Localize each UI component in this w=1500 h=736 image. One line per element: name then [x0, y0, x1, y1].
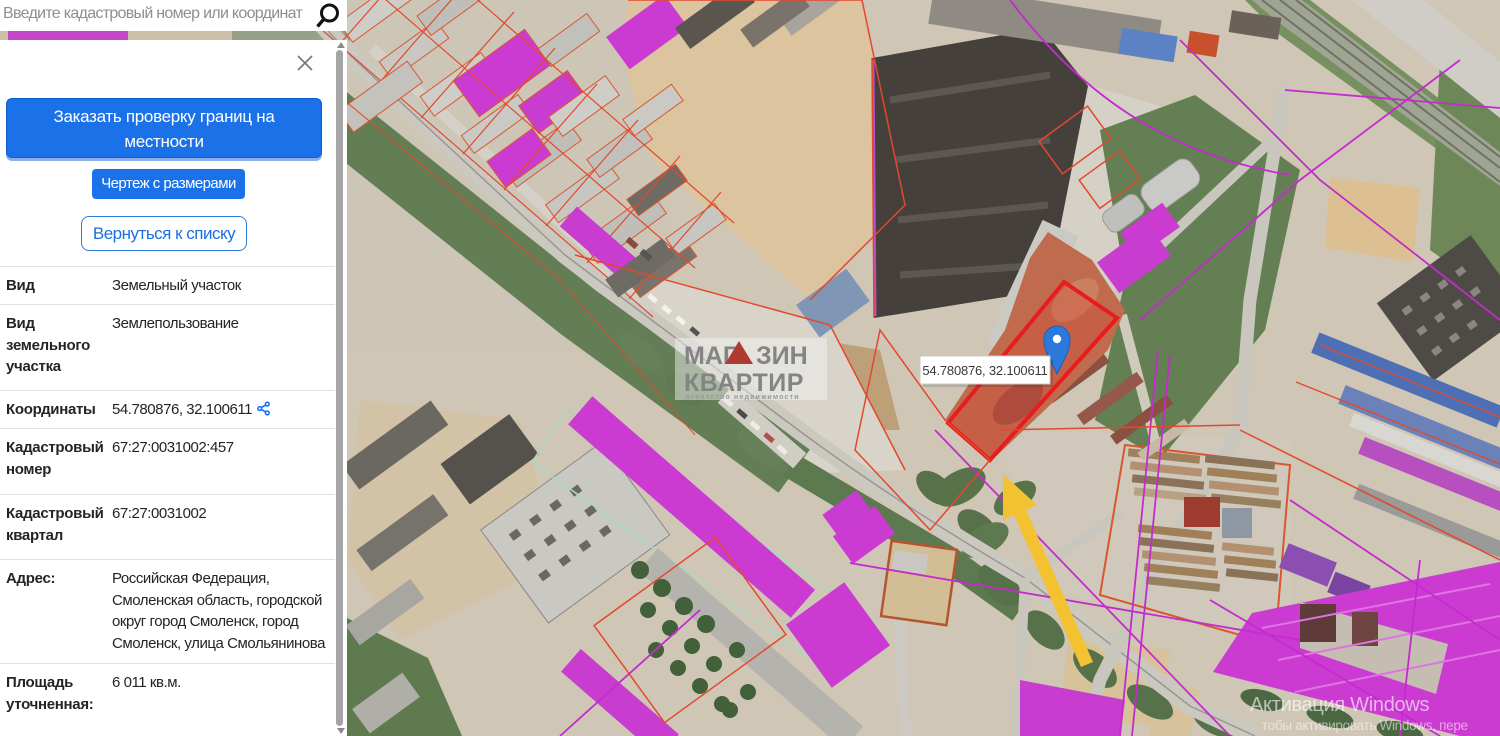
svg-text:Активация Windows: Активация Windows [1250, 694, 1430, 716]
svg-text:МАГ: МАГ [684, 342, 737, 370]
svg-text:ЗИН: ЗИН [756, 342, 808, 370]
svg-text:54.780876, 32.100611: 54.780876, 32.100611 [922, 363, 1047, 378]
svg-text:тобы активировать Windows, пер: тобы активировать Windows, пере [1262, 718, 1468, 733]
svg-text:агентство недвижимости: агентство недвижимости [686, 394, 800, 401]
svg-text:КВАРТИР: КВАРТИР [684, 369, 804, 397]
